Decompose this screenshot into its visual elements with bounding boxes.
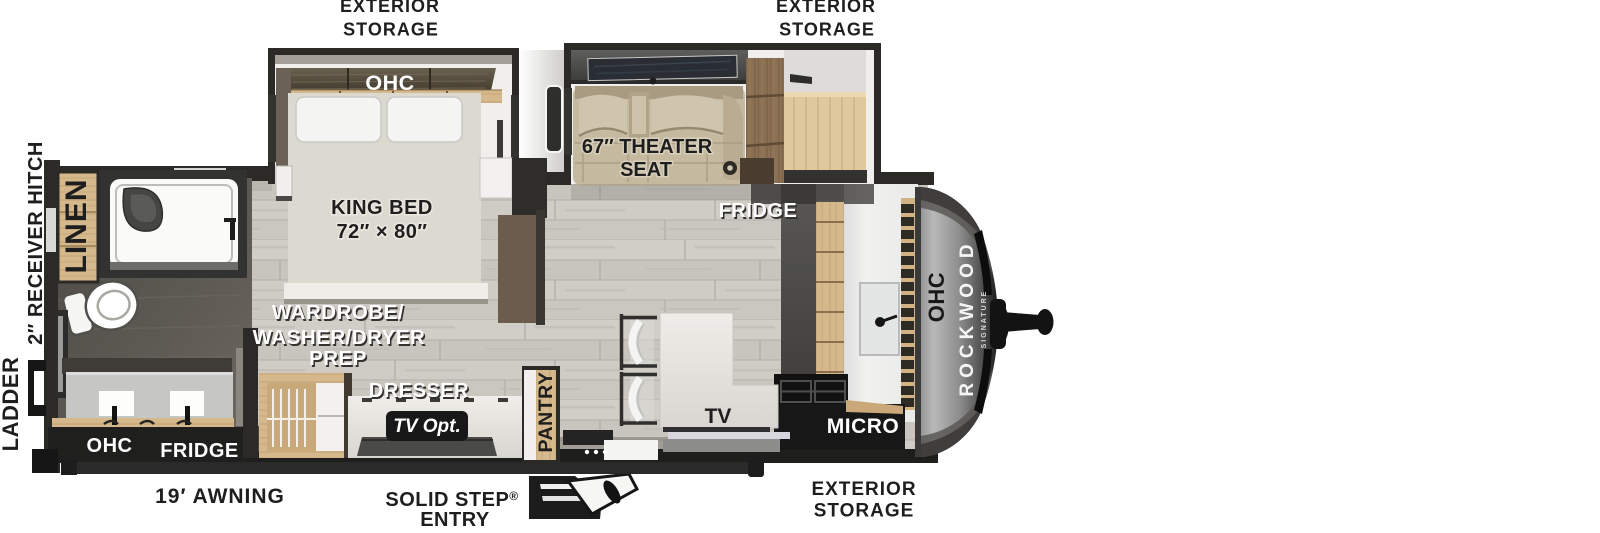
svg-text:EXTERIOR: EXTERIOR xyxy=(340,0,440,16)
svg-text:SOLID STEP®: SOLID STEP® xyxy=(385,489,518,511)
svg-text:19′ AWNING: 19′ AWNING xyxy=(155,485,285,508)
svg-text:FRIDGE: FRIDGE xyxy=(719,200,798,222)
svg-text:MICRO: MICRO xyxy=(827,415,900,438)
svg-text:SEAT: SEAT xyxy=(620,159,672,181)
svg-text:ROCKWOOD: ROCKWOOD xyxy=(957,239,978,396)
svg-text:FRIDGE: FRIDGE xyxy=(160,440,239,462)
svg-text:2″ RECEIVER HITCH: 2″ RECEIVER HITCH xyxy=(25,141,47,345)
svg-text:DRESSER: DRESSER xyxy=(369,380,469,402)
svg-text:OHC: OHC xyxy=(87,435,133,457)
svg-text:OHC: OHC xyxy=(924,272,949,322)
svg-text:STORAGE: STORAGE xyxy=(779,20,875,40)
svg-text:TV: TV xyxy=(705,405,732,428)
svg-text:WASHER/DRYER: WASHER/DRYER xyxy=(253,326,426,349)
svg-text:EXTERIOR: EXTERIOR xyxy=(811,479,916,500)
svg-text:LADDER: LADDER xyxy=(0,357,23,452)
svg-text:PANTRY: PANTRY xyxy=(535,372,557,453)
svg-text:LINEN: LINEN xyxy=(60,179,93,274)
svg-text:72″ × 80″: 72″ × 80″ xyxy=(337,221,428,243)
svg-text:STORAGE: STORAGE xyxy=(814,501,915,522)
svg-text:OHC: OHC xyxy=(365,71,414,95)
svg-text:STORAGE: STORAGE xyxy=(343,20,439,40)
svg-text:KING BED: KING BED xyxy=(331,197,433,219)
svg-text:PREP: PREP xyxy=(309,347,367,370)
svg-text:SIGNATURE: SIGNATURE xyxy=(981,290,988,349)
svg-text:WARDROBE/: WARDROBE/ xyxy=(272,301,404,324)
svg-text:TV Opt.: TV Opt. xyxy=(393,416,461,437)
svg-text:ENTRY: ENTRY xyxy=(420,509,490,531)
svg-text:EXTERIOR: EXTERIOR xyxy=(776,0,876,16)
svg-text:67″ THEATER: 67″ THEATER xyxy=(582,136,713,158)
